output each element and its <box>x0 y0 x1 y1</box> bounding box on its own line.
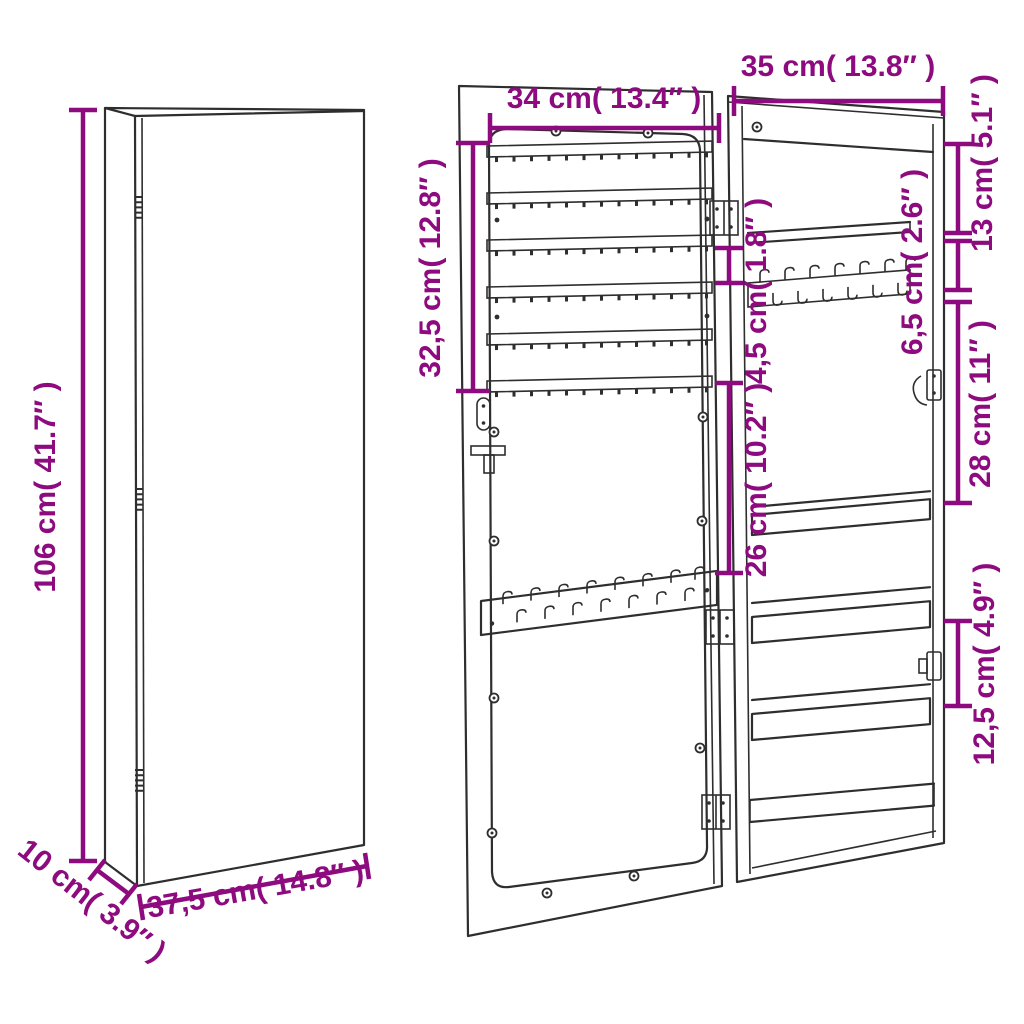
open-door-panel <box>459 86 722 936</box>
necklace-hook-rail <box>748 257 915 307</box>
door-inner-panel <box>489 129 707 887</box>
cabinet-front-top-edge <box>135 111 364 116</box>
jewelry-cabinet-dimension-diagram: 106 cm( 41.7″ ) 10 cm( 3.9″ ) 37,5 cm( 1… <box>0 0 1024 1024</box>
shelf-upper <box>752 491 930 535</box>
earring-rack-bar <box>487 282 712 300</box>
dim-label-door-gap: 4,5 cm( 1.8″ ) <box>740 198 773 384</box>
dim-body-shelf-gap-top: 6,5 cm( 2.6″ ) <box>896 169 972 355</box>
door-screws <box>488 127 710 898</box>
shelf-lower <box>752 684 930 740</box>
dim-door-rack-height: 32,5 cm( 12.8″ ) <box>414 143 490 391</box>
closed-cabinet-view <box>105 108 364 886</box>
dim-door-lower-section: 26 cm( 10.2″ ) <box>715 383 773 577</box>
dim-label-body-shelf-gap-top: 6,5 cm( 2.6″ ) <box>896 169 929 355</box>
dim-body-middle-section: 28 cm( 11″ ) <box>944 302 997 503</box>
dim-label-door-lower-section: 26 cm( 10.2″ ) <box>740 383 773 577</box>
dim-label-door-rack-height: 32,5 cm( 12.8″ ) <box>414 158 447 378</box>
dim-body-width: 35 cm( 13.8″ ) <box>734 50 943 116</box>
dim-body-shelf-gap-bottom: 12,5 cm( 4.9″ ) <box>944 563 1001 766</box>
lock-catch-upper <box>913 370 941 405</box>
dim-label-body-middle-section: 28 cm( 11″ ) <box>964 320 997 488</box>
base-shelf <box>750 784 934 822</box>
dim-body-top-section: 13 cm( 5.1″ ) <box>944 74 999 252</box>
dim-closed-height: 106 cm( 41.7″ ) <box>29 110 97 861</box>
door-hook-plate <box>481 565 717 635</box>
body-top-board <box>744 139 933 152</box>
mirror-door-gap-line <box>142 118 144 883</box>
dim-label-body-top-section: 13 cm( 5.1″ ) <box>966 74 999 252</box>
earring-rack-bar <box>487 376 712 394</box>
door-outline <box>459 86 722 936</box>
door-latch <box>471 398 505 473</box>
dimension-annotations: 106 cm( 41.7″ ) 10 cm( 3.9″ ) 37,5 cm( 1… <box>12 50 1001 968</box>
dim-label-closed-height: 106 cm( 41.7″ ) <box>29 381 62 592</box>
earring-rack-bars <box>487 141 712 394</box>
earring-rack-bar <box>487 141 712 159</box>
dim-label-door-width: 34 cm( 13.4″ ) <box>507 82 701 115</box>
dim-label-body-width: 35 cm( 13.8″ ) <box>741 50 935 83</box>
earring-rack-bar <box>487 329 712 347</box>
shelf-middle <box>752 587 930 643</box>
earring-rack-bar <box>487 188 712 206</box>
earring-rack-bar <box>487 235 712 253</box>
dim-label-body-shelf-gap-bottom: 12,5 cm( 4.9″ ) <box>968 563 1001 766</box>
lock-catch-lower <box>919 652 941 680</box>
